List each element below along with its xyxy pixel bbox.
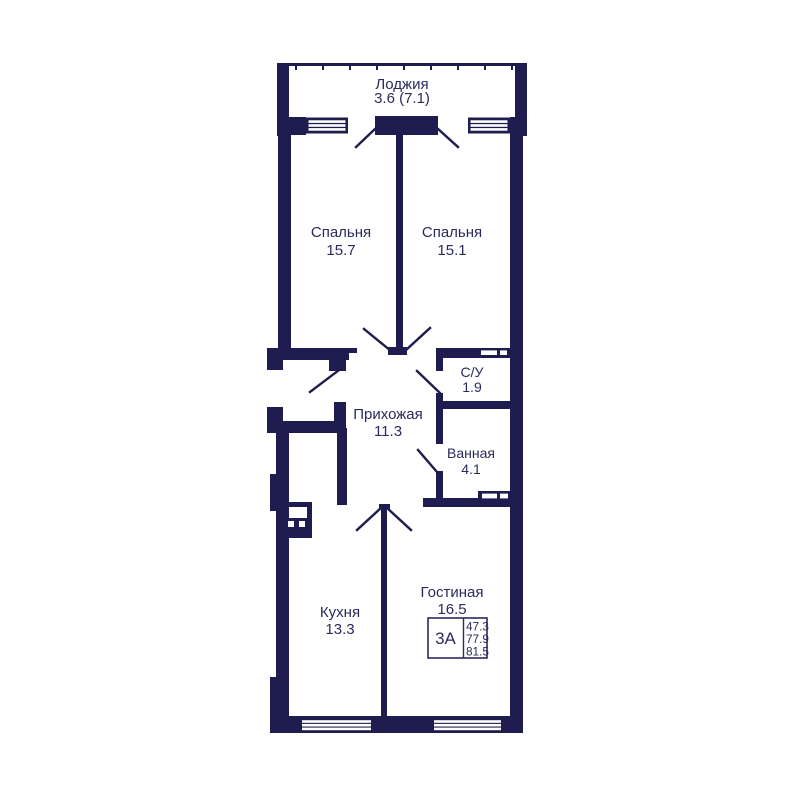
kitchen-hall-wall	[337, 428, 347, 505]
bedroom-divider	[364, 134, 430, 355]
wc-door-leaf	[417, 371, 440, 393]
entrance-jamb-upper	[329, 360, 346, 371]
room-area-bedroom-2: 15.1	[437, 242, 466, 259]
bedroom1-south-wall-stub	[345, 348, 357, 353]
bathroom-west-wall-upper	[436, 409, 443, 444]
east-wall	[510, 117, 523, 733]
room-area-kitchen: 13.3	[325, 621, 354, 638]
room-area-bathroom: 4.1	[461, 461, 481, 477]
bedroom-2-door-leaf	[406, 328, 430, 350]
room-label-bedroom-2: Спальня	[422, 224, 482, 241]
room-label-hallway: Прихожая	[353, 406, 423, 423]
kitchen-vent-box	[284, 502, 312, 538]
wc-vent-slot-2	[500, 350, 507, 355]
floor-plan-svg: Лоджия 3.6 (7.1)	[0, 0, 800, 800]
room-label-bathroom: Ванная	[447, 445, 495, 461]
bedrooms-divider-wall	[396, 134, 403, 350]
balcony-door-leaf-left	[356, 128, 376, 147]
window-living-room	[434, 720, 501, 730]
balcony-door-leaf-right	[437, 128, 458, 147]
wc-north-wall	[437, 348, 523, 358]
room-area-living-room: 16.5	[437, 601, 466, 618]
balcony-door-block	[375, 116, 438, 135]
entrance	[267, 348, 357, 433]
loggia-rail	[277, 63, 527, 66]
window-kitchen	[302, 720, 371, 730]
loggia-area: 3.6 (7.1)	[374, 90, 430, 107]
wc-vent-slot-1	[481, 350, 497, 355]
room-area-wc: 1.9	[462, 379, 482, 395]
kitchen-living-walls	[284, 428, 411, 717]
entrance-nub-lower	[267, 407, 283, 433]
kitchen-living-divider	[381, 505, 387, 717]
window-bedroom-2	[468, 118, 510, 134]
living-room-door-leaf	[386, 507, 411, 530]
window-bedroom-1	[306, 118, 348, 134]
wc-west-wall-upper	[436, 348, 443, 371]
bathroom-vent-slot-2	[500, 494, 508, 499]
unit-type-label: 3А	[435, 629, 456, 648]
unit-area-total: 81.5	[466, 645, 489, 659]
unit-badge: 3А 47.3 77.9 81.5	[428, 618, 489, 659]
bathroom-door-leaf	[418, 450, 437, 472]
floor-plan-page: Лоджия 3.6 (7.1)	[0, 0, 800, 800]
bedroom1-south-wall	[277, 348, 349, 360]
wc-bathroom-divider	[436, 401, 523, 409]
room-label-bedroom-1: Спальня	[311, 224, 371, 241]
room-label-wc: С/У	[461, 364, 484, 380]
west-wall-upper	[278, 117, 291, 360]
kitchen-door-leaf	[357, 507, 382, 530]
entrance-door-leaf	[310, 370, 339, 392]
room-area-hallway: 11.3	[374, 423, 402, 440]
bathroom-vent-slot-1	[482, 494, 497, 499]
entrance-wall-lower	[277, 421, 346, 433]
room-area-bedroom-1: 15.7	[326, 242, 355, 259]
bedroom-1-door-leaf	[364, 329, 391, 351]
room-label-kitchen: Кухня	[320, 604, 360, 621]
room-label-living-room: Гостиная	[421, 584, 484, 601]
